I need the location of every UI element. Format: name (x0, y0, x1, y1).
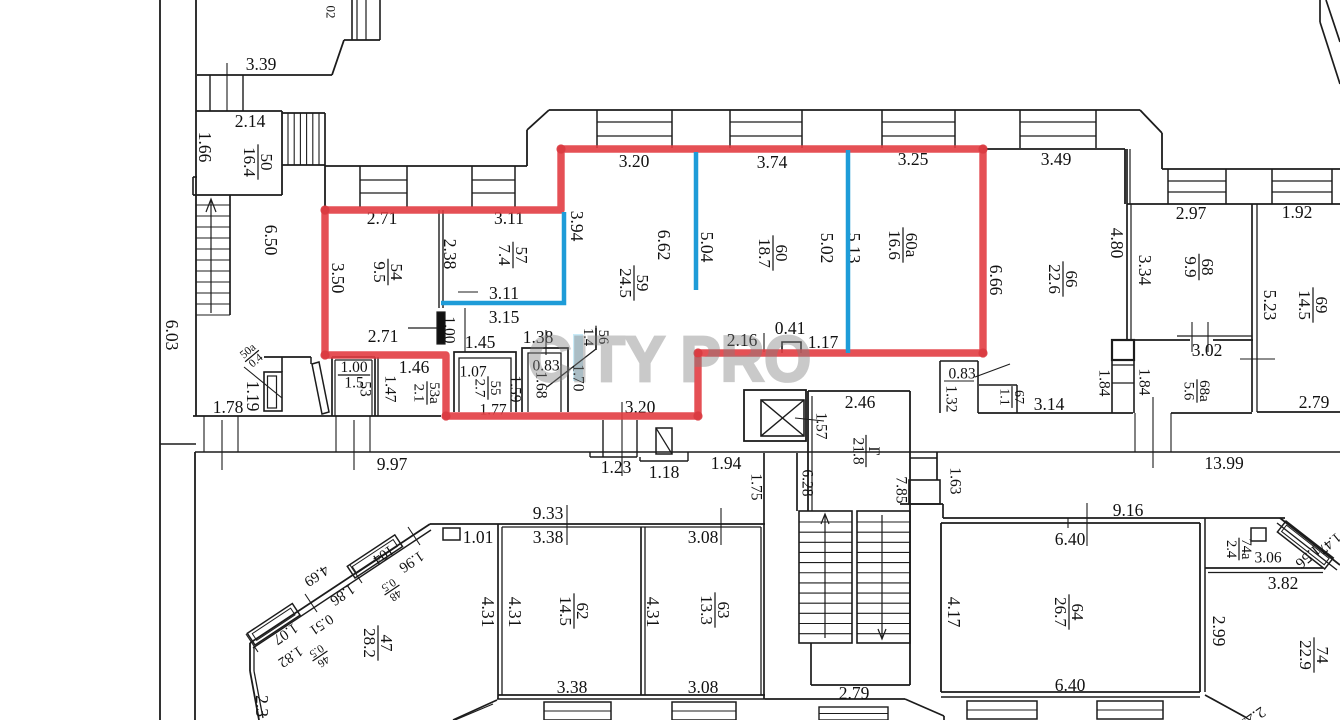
svg-text:3.14: 3.14 (1034, 394, 1065, 414)
svg-text:1.47: 1.47 (382, 375, 399, 402)
svg-text:02: 02 (323, 6, 338, 19)
svg-text:2.99: 2.99 (1209, 616, 1229, 647)
svg-text:2.79: 2.79 (839, 683, 870, 703)
svg-text:1.18: 1.18 (649, 462, 680, 482)
svg-text:3.50: 3.50 (328, 263, 348, 294)
svg-text:3.94: 3.94 (567, 211, 587, 242)
svg-text:1.59: 1.59 (507, 375, 524, 402)
svg-text:9.16: 9.16 (1113, 500, 1144, 520)
svg-text:2.71: 2.71 (368, 326, 399, 346)
svg-text:1.32: 1.32 (943, 385, 960, 412)
svg-text:7.4: 7.4 (495, 244, 514, 266)
svg-text:6.50: 6.50 (261, 225, 281, 256)
svg-text:1.00: 1.00 (441, 316, 458, 343)
svg-text:28.2: 28.2 (360, 628, 379, 658)
svg-text:6.40: 6.40 (1055, 675, 1086, 695)
svg-text:53: 53 (357, 381, 374, 397)
svg-text:68a: 68a (1196, 380, 1212, 402)
svg-text:3.82: 3.82 (1268, 573, 1299, 593)
svg-text:22.9: 22.9 (1296, 640, 1315, 670)
svg-text:14.5: 14.5 (1295, 290, 1314, 320)
svg-text:3.11: 3.11 (489, 283, 519, 303)
svg-text:2.3: 2.3 (252, 695, 272, 717)
svg-text:3.38: 3.38 (533, 527, 564, 547)
svg-text:3.74: 3.74 (757, 152, 788, 172)
svg-text:Г: Г (865, 447, 882, 456)
svg-text:2.97: 2.97 (1176, 203, 1207, 223)
svg-text:3.20: 3.20 (619, 151, 650, 171)
svg-text:1.19: 1.19 (243, 381, 263, 412)
svg-text:1.94: 1.94 (711, 453, 742, 473)
svg-text:6.40: 6.40 (1055, 529, 1086, 549)
svg-text:3.02: 3.02 (1192, 340, 1223, 360)
svg-text:6.03: 6.03 (162, 320, 182, 351)
svg-text:6.62: 6.62 (654, 230, 674, 261)
svg-text:1.84: 1.84 (1096, 369, 1113, 396)
svg-text:1.1: 1.1 (997, 388, 1012, 406)
svg-text:4.31: 4.31 (478, 597, 498, 628)
svg-text:22.6: 22.6 (1045, 264, 1064, 294)
svg-text:5.02: 5.02 (817, 233, 837, 264)
svg-text:0.83: 0.83 (948, 365, 975, 382)
svg-text:1.46: 1.46 (399, 357, 430, 377)
svg-text:18.7: 18.7 (755, 238, 774, 268)
svg-text:1.00: 1.00 (340, 359, 367, 376)
svg-text:9.5: 9.5 (370, 261, 389, 282)
svg-text:26.7: 26.7 (1051, 597, 1070, 627)
svg-text:4.31: 4.31 (505, 597, 525, 628)
svg-text:5.04: 5.04 (697, 232, 717, 263)
svg-text:1.17: 1.17 (808, 332, 839, 352)
svg-text:2.14: 2.14 (235, 111, 266, 131)
svg-text:16.4: 16.4 (240, 147, 259, 177)
svg-text:4.17: 4.17 (944, 597, 964, 628)
svg-text:16.6: 16.6 (885, 230, 904, 260)
svg-text:CITY PRO: CITY PRO (528, 323, 811, 395)
svg-text:3.15: 3.15 (489, 307, 520, 327)
svg-text:21.8: 21.8 (849, 437, 866, 464)
svg-text:2.1: 2.1 (411, 384, 427, 403)
svg-text:1.75: 1.75 (748, 473, 765, 500)
svg-text:3.49: 3.49 (1041, 149, 1072, 169)
svg-text:2.7: 2.7 (472, 379, 488, 398)
svg-text:3.06: 3.06 (1254, 549, 1281, 566)
svg-text:3.38: 3.38 (557, 677, 588, 697)
svg-text:2.79: 2.79 (1299, 392, 1330, 412)
svg-text:1.66: 1.66 (195, 132, 215, 163)
svg-text:1.45: 1.45 (465, 332, 496, 352)
svg-text:74a: 74a (1238, 539, 1254, 561)
svg-text:7.85: 7.85 (893, 476, 910, 503)
svg-text:14.5: 14.5 (556, 596, 575, 626)
svg-text:2.4: 2.4 (1223, 540, 1239, 559)
svg-text:13.99: 13.99 (1204, 453, 1244, 473)
svg-text:1.84: 1.84 (1136, 368, 1153, 395)
svg-text:3.39: 3.39 (246, 54, 277, 74)
svg-text:53a: 53a (426, 382, 442, 404)
svg-text:9.97: 9.97 (377, 454, 408, 474)
svg-text:13.3: 13.3 (697, 595, 716, 625)
svg-text:4.31: 4.31 (643, 597, 663, 628)
svg-text:5.23: 5.23 (1260, 290, 1280, 321)
svg-text:4.80: 4.80 (1107, 228, 1127, 259)
svg-text:9.33: 9.33 (533, 503, 564, 523)
svg-text:1.78: 1.78 (213, 397, 244, 417)
svg-text:1.63: 1.63 (947, 467, 964, 494)
svg-text:24.5: 24.5 (616, 268, 635, 298)
svg-text:6.28: 6.28 (799, 469, 816, 496)
svg-text:1.57: 1.57 (813, 412, 830, 439)
svg-text:5.6: 5.6 (1181, 382, 1197, 401)
svg-text:55: 55 (487, 381, 503, 396)
svg-text:1.23: 1.23 (601, 457, 632, 477)
svg-text:1.01: 1.01 (463, 527, 494, 547)
svg-text:9.9: 9.9 (1181, 256, 1200, 277)
svg-text:1.92: 1.92 (1282, 202, 1313, 222)
svg-text:3.34: 3.34 (1135, 255, 1155, 286)
svg-text:67: 67 (1011, 390, 1026, 404)
svg-text:6.66: 6.66 (986, 265, 1006, 296)
svg-text:2.46: 2.46 (845, 392, 876, 412)
svg-text:3.08: 3.08 (688, 527, 719, 547)
svg-text:3.08: 3.08 (688, 677, 719, 697)
svg-text:2.38: 2.38 (440, 239, 460, 270)
